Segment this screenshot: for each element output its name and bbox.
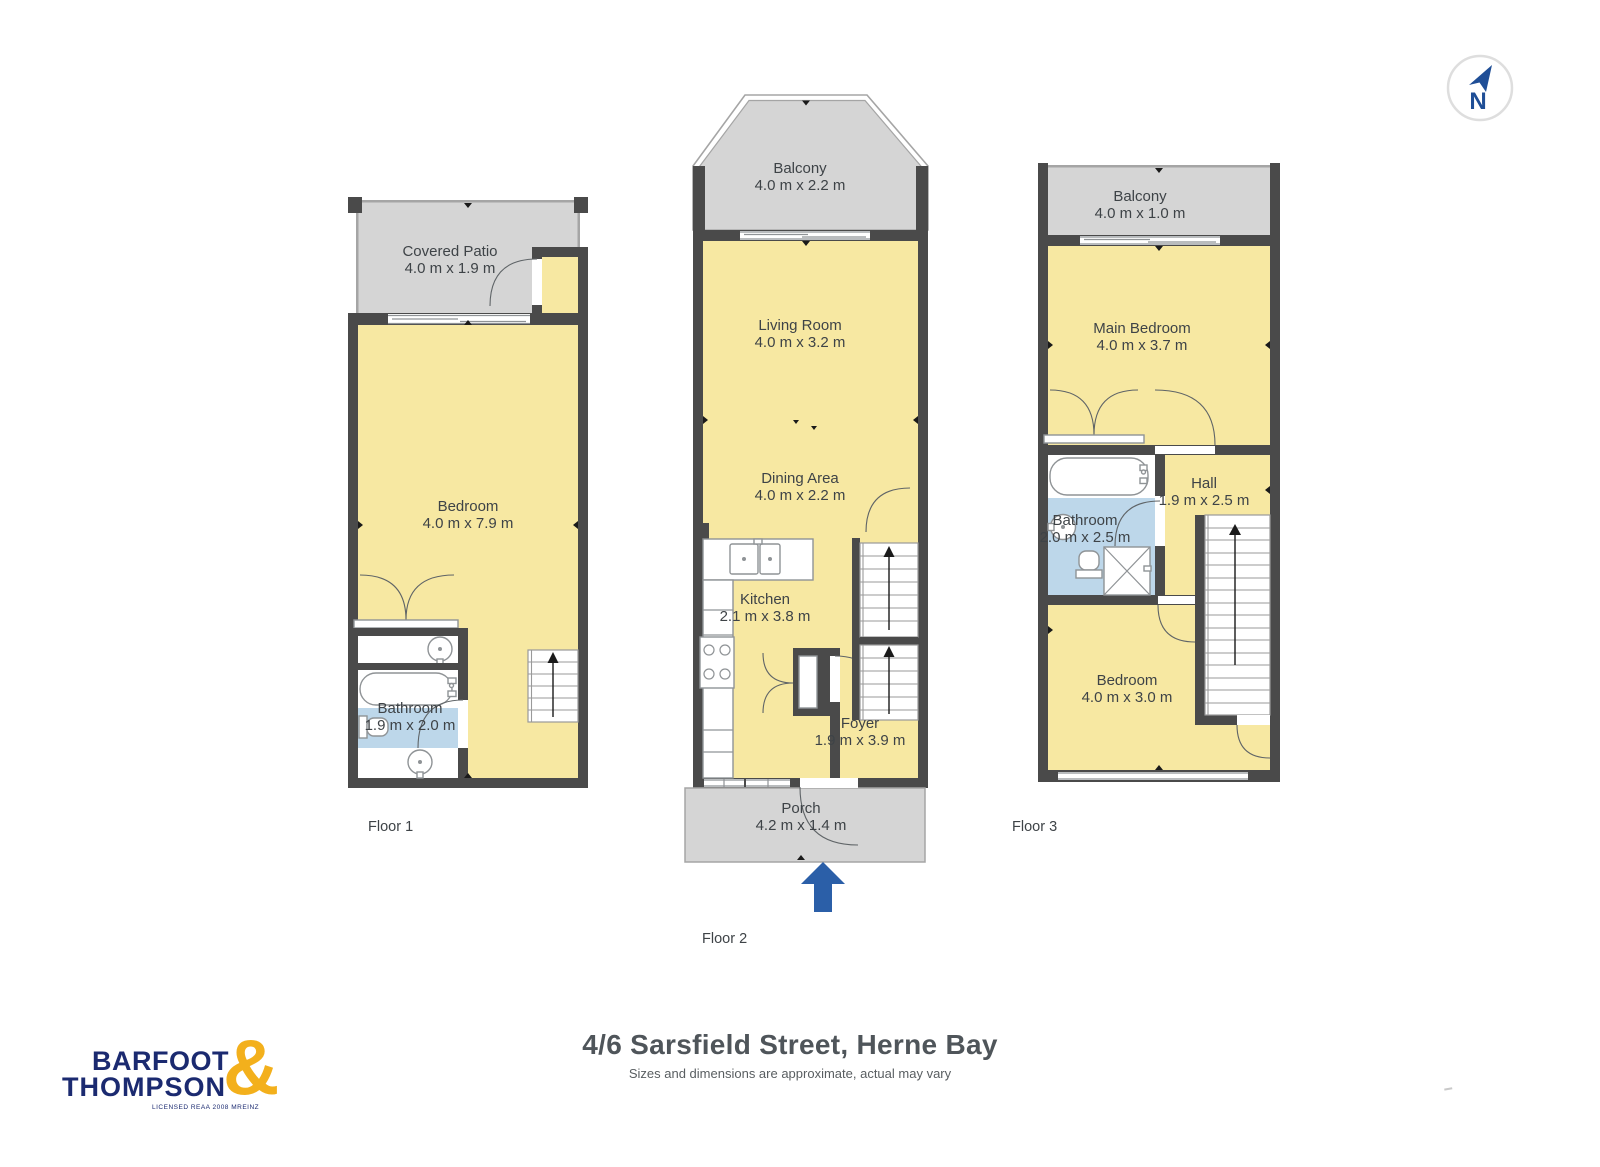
floor1-caption: Floor 1 bbox=[368, 819, 413, 835]
window bbox=[1058, 772, 1248, 780]
sink-icon bbox=[730, 539, 780, 574]
logo-tagline: LICENSED REAA 2008 MREINZ bbox=[152, 1104, 259, 1111]
entry-arrow-icon bbox=[801, 862, 845, 912]
bathtub-icon bbox=[1050, 458, 1148, 495]
floor2-caption: Floor 2 bbox=[702, 931, 747, 947]
stove-icon bbox=[700, 637, 734, 688]
floor2-plan bbox=[680, 90, 932, 920]
window bbox=[704, 779, 790, 787]
room-label-main-bedroom: Main Bedroom4.0 m x 3.7 m bbox=[1093, 320, 1191, 354]
compass-icon: N bbox=[1444, 52, 1516, 124]
sliding-door bbox=[1080, 236, 1220, 245]
barfoot-thompson-logo: & BARFOOT THOMPSON LICENSED REAA 2008 MR… bbox=[60, 1025, 290, 1125]
door-opening bbox=[1237, 715, 1270, 725]
sliding-door bbox=[740, 231, 870, 240]
shower-icon bbox=[1104, 547, 1151, 595]
door-opening bbox=[1155, 446, 1215, 454]
room-label-bedroom-f3: Bedroom4.0 m x 3.0 m bbox=[1082, 672, 1173, 706]
room-label-covered-patio: Covered Patio4.0 m x 1.9 m bbox=[402, 243, 497, 277]
room-label-porch: Porch4.2 m x 1.4 m bbox=[756, 800, 847, 834]
room-label-kitchen: Kitchen2.1 m x 3.8 m bbox=[720, 591, 811, 625]
floor3-caption: Floor 3 bbox=[1012, 819, 1057, 835]
decorative-mark bbox=[1444, 1084, 1453, 1090]
floorplan-page: Covered Patio4.0 m x 1.9 m Bedroom4.0 m … bbox=[0, 0, 1600, 1167]
room-label-living-room: Living Room4.0 m x 3.2 m bbox=[755, 317, 846, 351]
room-label-bedroom-f1: Bedroom4.0 m x 7.9 m bbox=[423, 498, 514, 532]
room-label-balcony-f2: Balcony4.0 m x 2.2 m bbox=[755, 160, 846, 194]
floor3-nook-area bbox=[1195, 725, 1270, 770]
compass-letter: N bbox=[1469, 88, 1486, 115]
room-label-hall: Hall1.9 m x 2.5 m bbox=[1159, 475, 1250, 509]
room-label-dining-area: Dining Area4.0 m x 2.2 m bbox=[755, 470, 846, 504]
logo-ampersand: & bbox=[223, 1028, 279, 1106]
door-opening bbox=[1158, 596, 1195, 604]
window bbox=[388, 314, 530, 324]
room-label-balcony-f3: Balcony4.0 m x 1.0 m bbox=[1095, 188, 1186, 222]
floor1-laundry bbox=[348, 636, 458, 670]
toilet-icon bbox=[1076, 551, 1102, 578]
logo-line2: THOMPSON bbox=[62, 1074, 226, 1101]
stairs-icon bbox=[528, 650, 578, 722]
room-label-foyer: Foyer1.9 m x 3.9 m bbox=[815, 715, 906, 749]
room-label-bathroom-f1: Bathroom1.9 m x 2.0 m bbox=[365, 700, 456, 734]
room-label-bathroom-f3: Bathroom2.0 m x 2.5 m bbox=[1040, 512, 1131, 546]
logo-line1: BARFOOT bbox=[92, 1048, 229, 1075]
stairs-icon bbox=[1205, 515, 1270, 715]
